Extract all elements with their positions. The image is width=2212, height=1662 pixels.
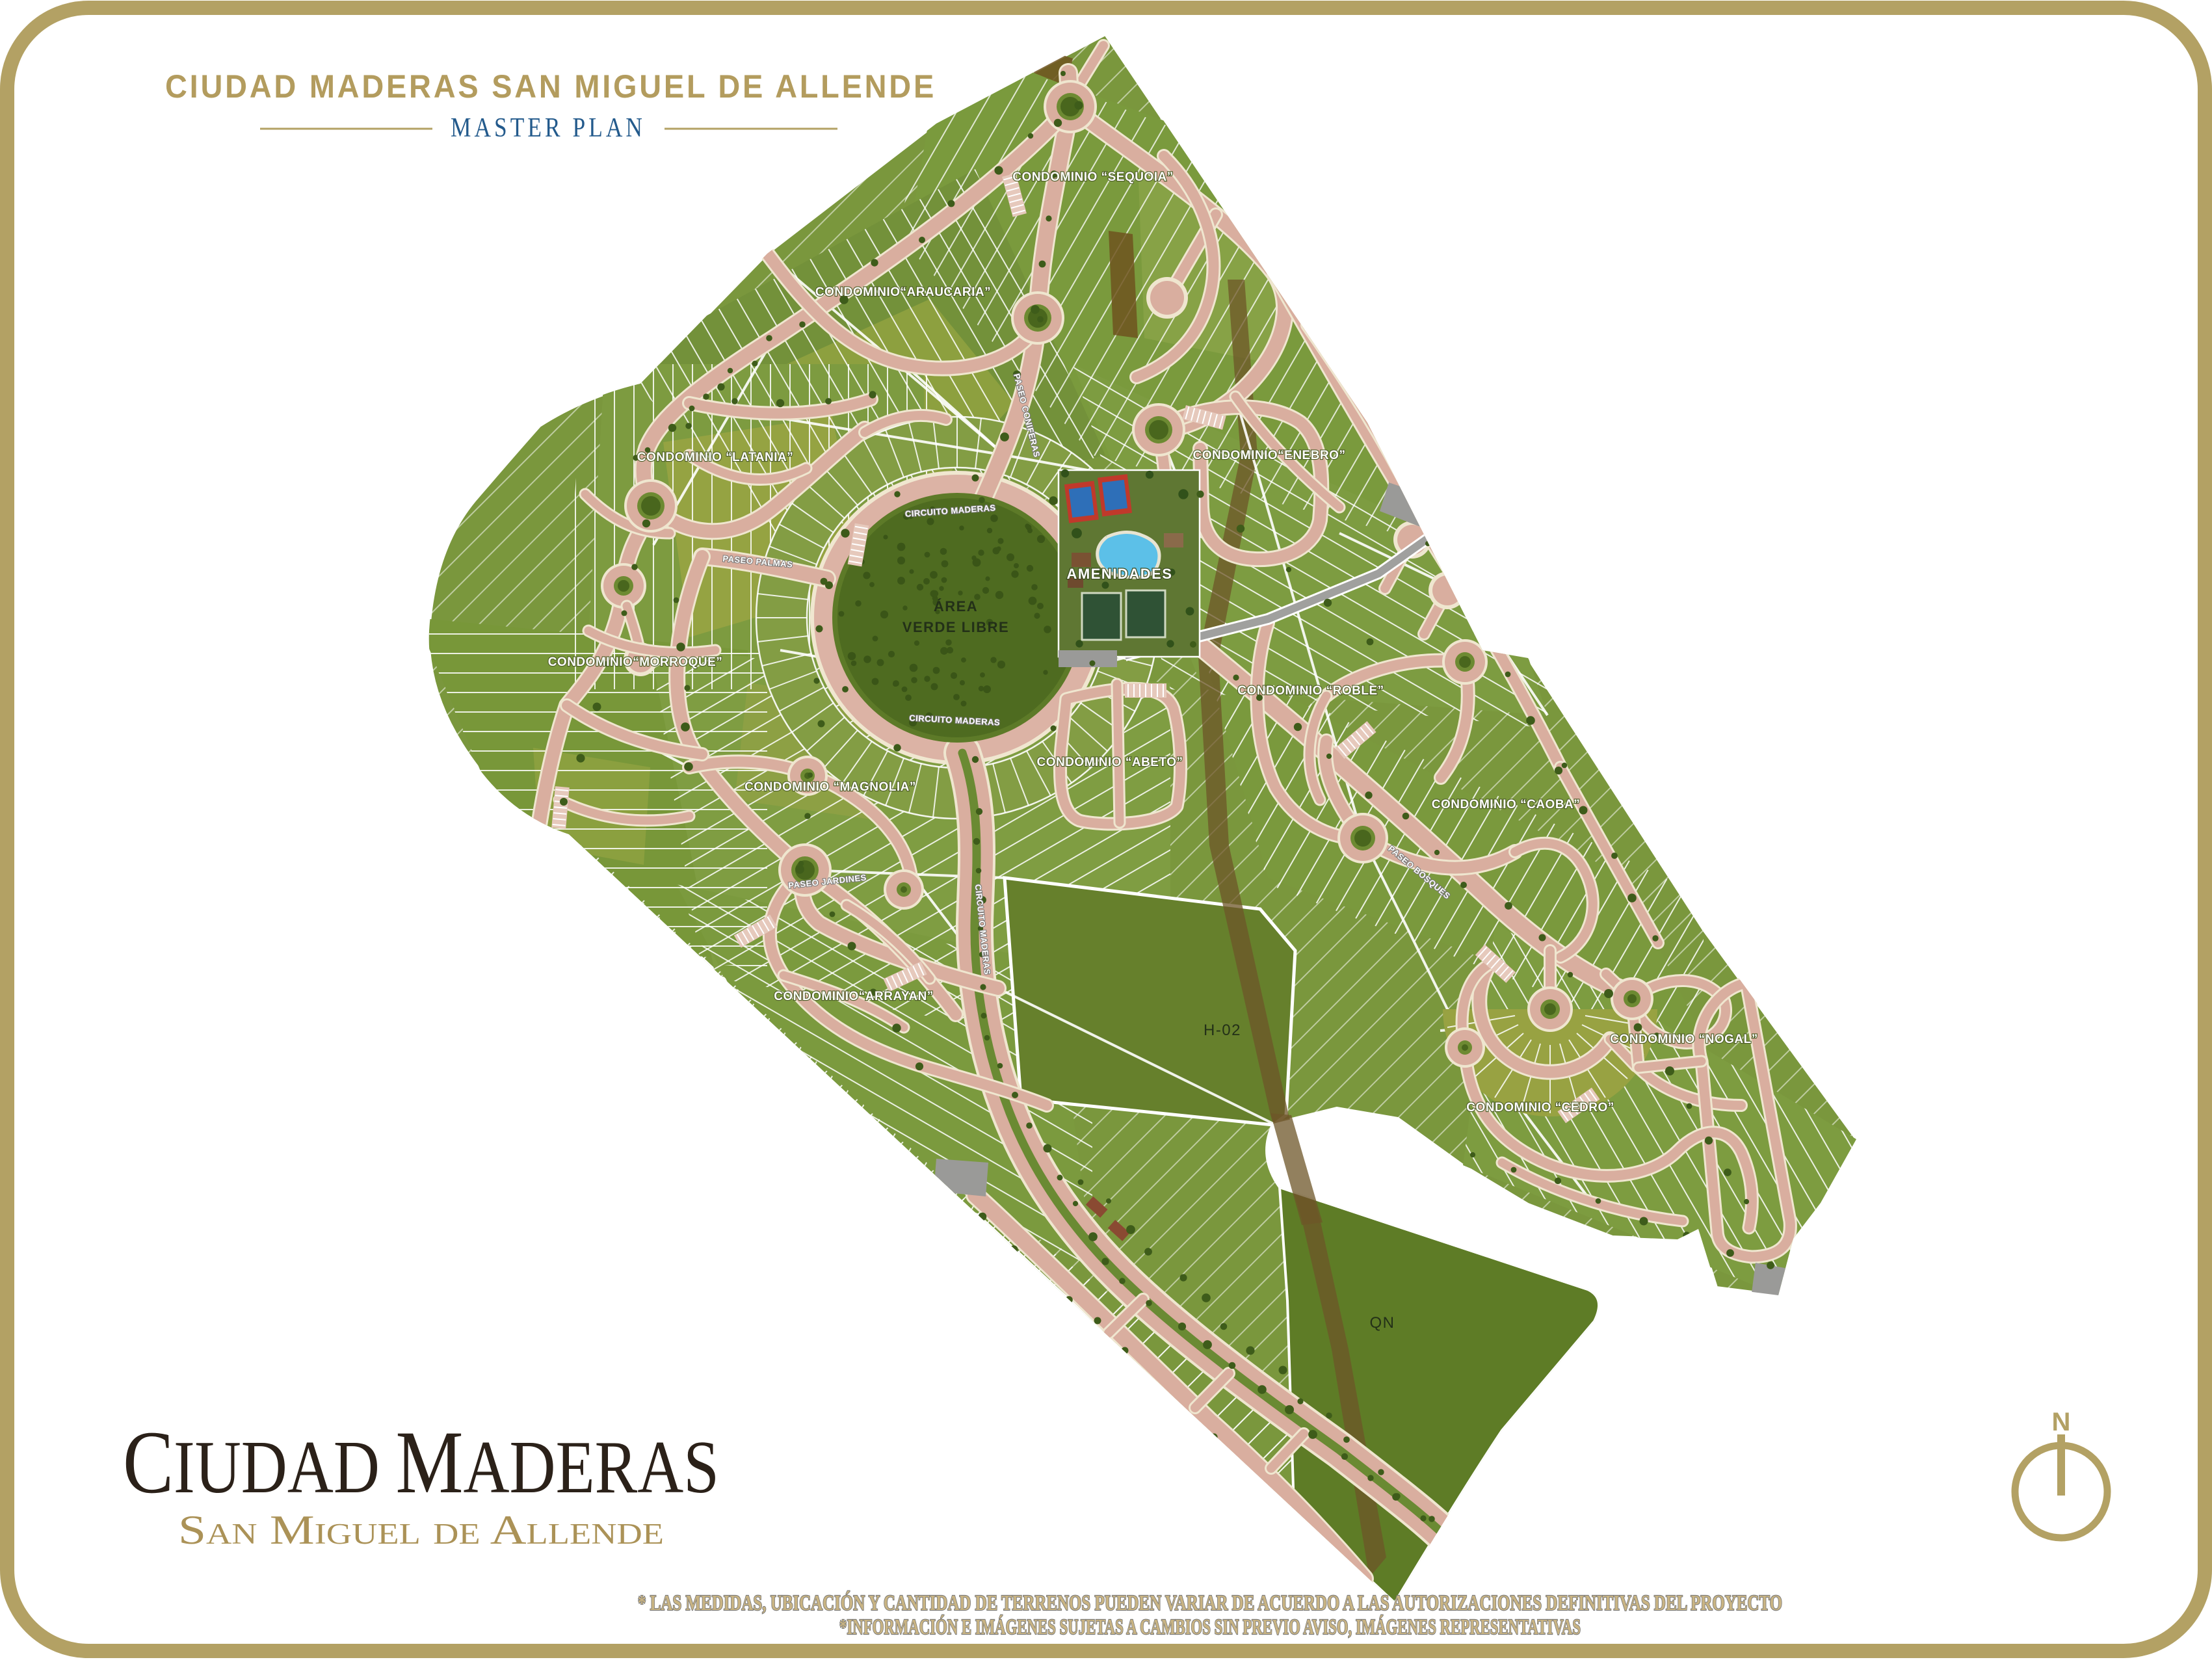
svg-text:CONDOMINIO “CEDRO”: CONDOMINIO “CEDRO”: [1466, 1101, 1614, 1115]
svg-text:CONDOMINIO “CAOBA”: CONDOMINIO “CAOBA”: [1432, 798, 1581, 811]
svg-text:San Miguel de Allende: San Miguel de Allende: [178, 1507, 664, 1553]
svg-text:VERDE LIBRE: VERDE LIBRE: [902, 619, 1009, 635]
svg-text:CONDOMINIO “MAGNOLIA”: CONDOMINIO “MAGNOLIA”: [744, 780, 916, 794]
svg-text:*INFORMACIÓN E IMÁGENES SUJETA: *INFORMACIÓN E IMÁGENES SUJETAS A CAMBIO…: [839, 1615, 1581, 1639]
svg-text:AMENIDADES: AMENIDADES: [1067, 566, 1173, 582]
svg-text:CONDOMINIO “LATANIA”: CONDOMINIO “LATANIA”: [637, 451, 793, 464]
svg-text:CONDOMINIO“MORROQUE”: CONDOMINIO“MORROQUE”: [548, 655, 723, 669]
svg-text:MASTER PLAN: MASTER PLAN: [451, 113, 646, 143]
svg-text:CIUDAD MADERAS: CIUDAD MADERAS: [123, 1412, 719, 1512]
svg-text:CONDOMINIO “NOGAL”: CONDOMINIO “NOGAL”: [1610, 1033, 1758, 1046]
svg-text:H-02: H-02: [1204, 1022, 1241, 1039]
svg-text:CONDOMINIO“ENEBRO”: CONDOMINIO“ENEBRO”: [1193, 449, 1346, 462]
svg-text:CONDOMINIO “ROBLE”: CONDOMINIO “ROBLE”: [1237, 684, 1384, 698]
svg-text:CIUDAD MADERAS SAN MIGUEL DE A: CIUDAD MADERAS SAN MIGUEL DE ALLENDE: [165, 68, 936, 105]
svg-text:QN: QN: [1370, 1314, 1395, 1332]
svg-text:CONDOMINIO “SEQUOIA”: CONDOMINIO “SEQUOIA”: [1012, 170, 1174, 184]
svg-text:N: N: [2052, 1408, 2071, 1436]
svg-text:CONDOMINIO “ABETO”: CONDOMINIO “ABETO”: [1036, 756, 1183, 769]
svg-text:* LAS MEDIDAS, UBICACIÓN Y CAN: * LAS MEDIDAS, UBICACIÓN Y CANTIDAD DE T…: [638, 1590, 1782, 1615]
svg-text:CONDOMINIO“ARRAYAN”: CONDOMINIO“ARRAYAN”: [774, 990, 934, 1003]
svg-text:CONDOMINIO“ARAUCARIA”: CONDOMINIO“ARAUCARIA”: [815, 285, 991, 299]
svg-text:ÁREA: ÁREA: [934, 598, 978, 614]
